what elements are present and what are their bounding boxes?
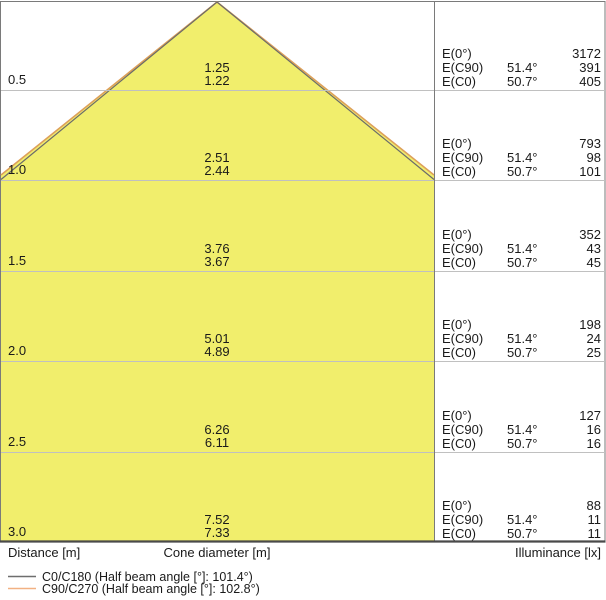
ec90-value: 24 <box>587 331 601 346</box>
ec0-angle: 50.7° <box>507 255 538 270</box>
cone-diagram-canvas: 0.5 1.25 1.22 E(0°) 3172 E(C90) 51.4° 39… <box>0 0 606 600</box>
ec90-angle: 51.4° <box>507 60 538 75</box>
e0-value: 88 <box>587 498 601 513</box>
e0-label: E(0°) <box>442 227 472 242</box>
e0-label: E(0°) <box>442 498 472 513</box>
distance-value: 0.5 <box>8 72 26 87</box>
ec90-angle: 51.4° <box>507 422 538 437</box>
e0-value: 352 <box>579 227 601 242</box>
cone-diameter-c0: 1.22 <box>204 73 229 88</box>
ec0-label: E(C0) <box>442 164 476 179</box>
ec0-value: 16 <box>587 436 601 451</box>
distance-axis-label: Distance [m] <box>8 545 80 560</box>
e0-value: 3172 <box>572 46 601 61</box>
ec0-angle: 50.7° <box>507 164 538 179</box>
ec0-angle: 50.7° <box>507 436 538 451</box>
e0-value: 127 <box>579 408 601 423</box>
cone-diameter-c0: 2.44 <box>204 163 229 178</box>
cone-diameter-c0: 6.11 <box>205 435 229 450</box>
ec0-angle: 50.7° <box>507 345 538 360</box>
e0-label: E(0°) <box>442 46 472 61</box>
ec0-value: 45 <box>587 255 601 270</box>
ec90-label: E(C90) <box>442 60 483 75</box>
ec0-label: E(C0) <box>442 255 476 270</box>
cone-diameter-c0: 4.89 <box>204 344 229 359</box>
ec90-value: 43 <box>587 241 601 256</box>
ec0-label: E(C0) <box>442 526 476 541</box>
legend: C0/C180 (Half beam angle [°]: 101.4°) C9… <box>8 570 260 596</box>
illuminance-axis-label: Illuminance [lx] <box>515 545 601 560</box>
distance-value: 1.5 <box>8 253 26 268</box>
ec0-angle: 50.7° <box>507 74 538 89</box>
e0-label: E(0°) <box>442 408 472 423</box>
e0-label: E(0°) <box>442 317 472 332</box>
ec90-angle: 51.4° <box>507 331 538 346</box>
c90-c270-legend-label: C90/C270 (Half beam angle [°]: 102.8°) <box>42 582 260 596</box>
e0-value: 198 <box>579 317 601 332</box>
ec90-angle: 51.4° <box>507 512 538 527</box>
ec90-label: E(C90) <box>442 512 483 527</box>
ec90-angle: 51.4° <box>507 241 538 256</box>
ec0-value: 11 <box>588 526 602 541</box>
ec0-label: E(C0) <box>442 436 476 451</box>
ec90-value: 16 <box>587 422 601 437</box>
distance-value: 2.5 <box>8 434 26 449</box>
ec90-label: E(C90) <box>442 150 483 165</box>
ec90-label: E(C90) <box>442 331 483 346</box>
distance-value: 2.0 <box>8 343 26 358</box>
ec0-value: 25 <box>587 345 601 360</box>
ec0-angle: 50.7° <box>507 526 538 541</box>
ec90-label: E(C90) <box>442 241 483 256</box>
e0-label: E(0°) <box>442 136 472 151</box>
cone-diameter-c0: 3.67 <box>204 254 229 269</box>
cone-diameter-axis-label: Cone diameter [m] <box>164 545 271 560</box>
ec90-value: 98 <box>587 150 601 165</box>
ec90-label: E(C90) <box>442 422 483 437</box>
distance-value: 1.0 <box>8 162 26 177</box>
ec0-label: E(C0) <box>442 74 476 89</box>
light-cone-diagram: 0.5 1.25 1.22 E(0°) 3172 E(C90) 51.4° 39… <box>0 0 606 600</box>
ec0-value: 405 <box>579 74 601 89</box>
ec90-angle: 51.4° <box>507 150 538 165</box>
cone-diameter-c0: 7.33 <box>204 525 229 540</box>
ec0-value: 101 <box>579 164 601 179</box>
ec90-value: 391 <box>579 60 601 75</box>
ec90-value: 11 <box>588 512 602 527</box>
distance-value: 3.0 <box>8 524 26 539</box>
e0-value: 793 <box>579 136 601 151</box>
ec0-label: E(C0) <box>442 345 476 360</box>
